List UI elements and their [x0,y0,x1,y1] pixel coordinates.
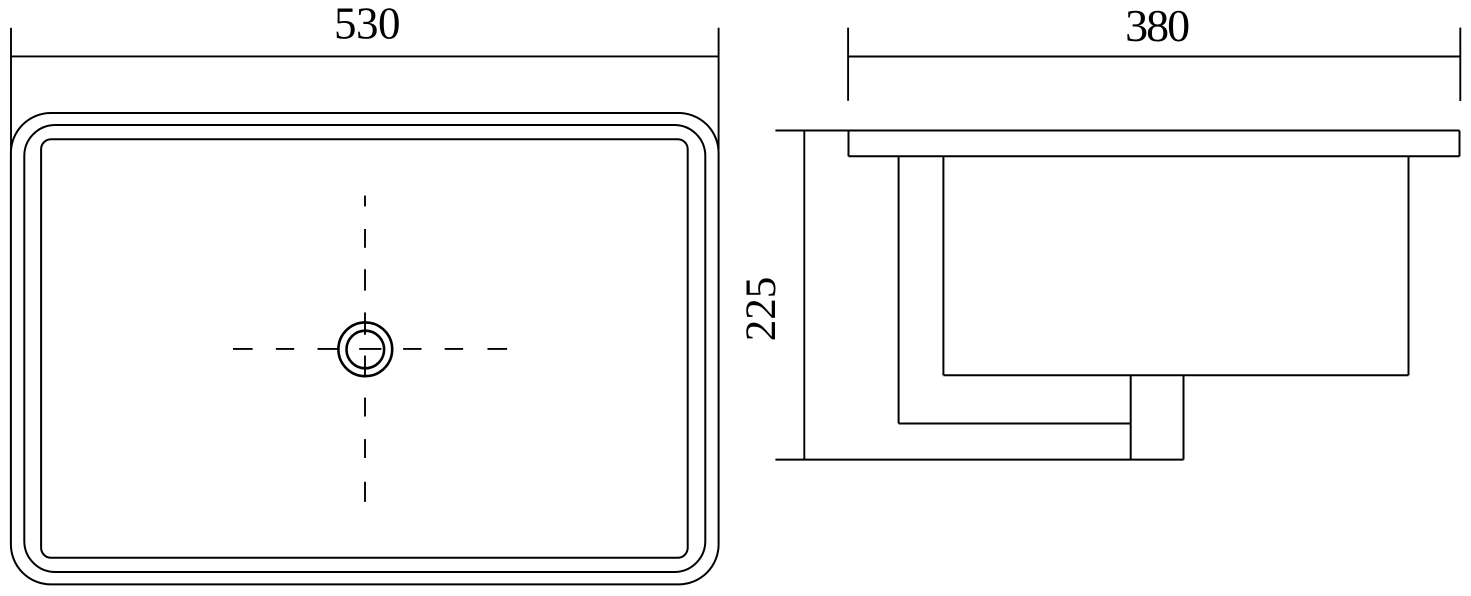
svg-text:530: 530 [334,0,400,48]
svg-text:380: 380 [1125,0,1189,51]
svg-text:225: 225 [738,277,785,342]
